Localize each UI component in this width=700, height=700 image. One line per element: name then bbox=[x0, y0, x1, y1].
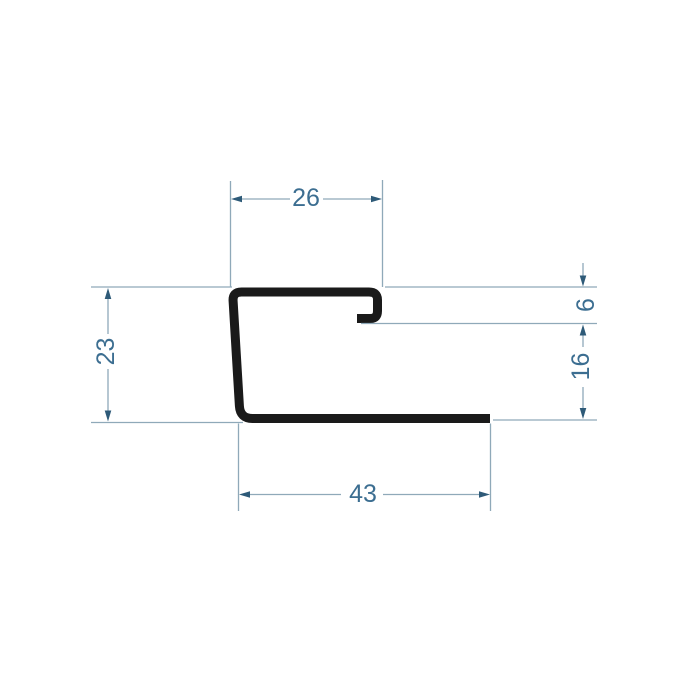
dim-label-hook-depth: 6 bbox=[572, 298, 600, 312]
profile-technical-drawing: 26 23 6 16 43 bbox=[0, 0, 700, 700]
dim-label-top-width: 26 bbox=[292, 184, 320, 212]
dim-label-bottom-width: 43 bbox=[349, 480, 377, 508]
drawing-canvas: 26 23 6 16 43 bbox=[0, 0, 700, 700]
dim-label-left-height: 23 bbox=[92, 338, 120, 366]
dim-label-right-opening: 16 bbox=[567, 353, 595, 381]
